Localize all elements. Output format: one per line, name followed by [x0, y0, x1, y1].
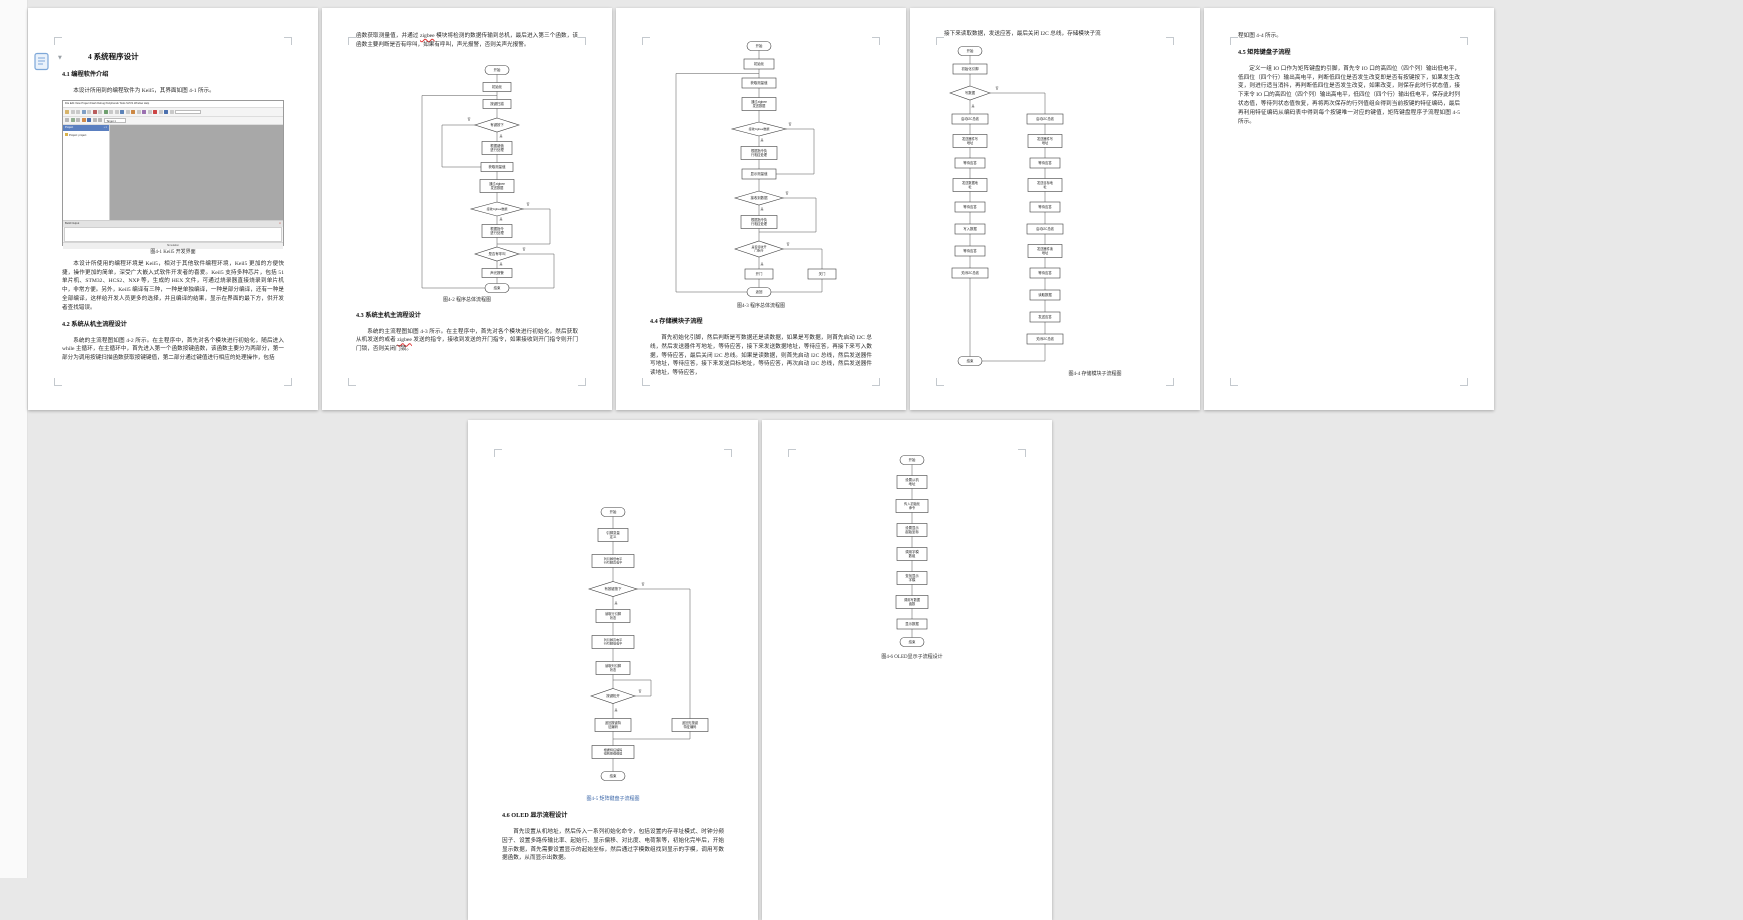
svg-text:根据指令执行相应处理: 根据指令执行相应处理	[751, 148, 768, 157]
svg-text:是: 是	[614, 600, 617, 605]
left-panel-edge	[0, 0, 28, 878]
svg-text:关门: 关门	[819, 271, 826, 276]
svg-text:是: 是	[499, 216, 502, 221]
figure-caption-4-6[interactable]: 图4-6 OLED显示子流程设计	[822, 654, 1002, 661]
svg-text:启动I2C总线: 启动I2C总线	[1036, 226, 1055, 231]
svg-text:是: 是	[971, 103, 974, 108]
svg-text:等待应答: 等待应答	[1038, 204, 1052, 209]
svg-text:返回: 返回	[756, 289, 763, 294]
svg-text:声光报警: 声光报警	[490, 269, 504, 274]
build-output-header: Build Output ×	[63, 220, 283, 227]
flowchart-fig-4-2[interactable]: 开始初始化按键扫描有键按下根据键值进行处理获取测量值通过zigbee发送数据接收…	[412, 62, 578, 294]
corner-mark	[348, 378, 356, 386]
svg-text:等待应答: 等待应答	[963, 248, 977, 253]
svg-text:开始: 开始	[909, 457, 916, 462]
svg-text:接收zigbee数据: 接收zigbee数据	[749, 126, 770, 131]
keil-project-panel: Project ▪ × Project: project	[63, 125, 110, 220]
svg-text:开始: 开始	[494, 66, 501, 71]
svg-text:关闭I2C总线: 关闭I2C总线	[961, 270, 980, 275]
body-paragraph[interactable]: 首先设置从机地址，然后传入一系列初始化命令，包括设置内存寻址模式、时钟分频因子、…	[502, 828, 724, 863]
svg-text:否: 否	[785, 191, 788, 195]
close-icon: ×	[279, 221, 281, 227]
keil-screenshot-figure[interactable]: File Edit View Project Flash Debug Perip…	[62, 100, 284, 246]
keil-menu-bar: File Edit View Project Flash Debug Perip…	[63, 101, 283, 108]
keil-build-icons	[65, 118, 102, 122]
corner-mark	[1166, 378, 1174, 386]
body-paragraph[interactable]: 接下来读取数据，发送应答，最后关闭 I2C 总线，存储模块子流	[944, 30, 1166, 39]
keil-target-select: Target 1	[104, 118, 126, 123]
svg-text:有按键按下: 有按键按下	[605, 586, 623, 591]
section-heading-4-1[interactable]: 4.1 编程软件介绍	[62, 71, 284, 79]
svg-text:否: 否	[786, 242, 789, 246]
keil-toolbar-icons	[65, 110, 174, 114]
collapse-triangle-icon[interactable]: ▼	[58, 55, 62, 61]
flowchart-fig-4-6[interactable]: 开始设置从机地址传入初始化命令设置显示起始坐标调用字模数组查找显示字模调用写数据…	[867, 452, 1018, 650]
svg-text:关闭I2C总线: 关闭I2C总线	[1036, 336, 1055, 341]
svg-text:有键按下: 有键按下	[490, 121, 504, 126]
heading-anchor-icon[interactable]	[33, 52, 51, 71]
section-heading-4-6[interactable]: 4.6 OLED 显示流程设计	[502, 812, 724, 820]
corner-mark	[1018, 449, 1026, 457]
section-heading-4-2[interactable]: 4.2 系统从机主流程设计	[62, 321, 284, 329]
svg-text:显示数据: 显示数据	[905, 621, 919, 626]
svg-text:初始化: 初始化	[492, 83, 503, 88]
chapter-title[interactable]: 4 系统程序设计	[88, 52, 284, 61]
svg-text:开门: 开门	[756, 271, 763, 276]
corner-mark	[872, 37, 880, 45]
flowchart-fig-4-3[interactable]: 开始初始化获取测量值通过zigbee发送数据接收zigbee数据根据指令执行相应…	[664, 38, 872, 300]
corner-mark	[1460, 37, 1468, 45]
keil-status-bar: Simulation	[63, 242, 283, 249]
svg-text:是: 是	[614, 707, 617, 712]
flowchart-fig-4-5[interactable]: 开始引脚变量定义列引脚低电平行引脚高电平有按键按下读取行引脚状态列引脚高电平行引…	[508, 504, 724, 782]
svg-text:否: 否	[638, 689, 641, 693]
figure-caption-4-3[interactable]: 图4-3 程序总体流程图	[650, 303, 872, 310]
body-paragraph[interactable]: 本设计所用到的编程软件为 Keil5，其界面如图 4-1 所示。	[62, 87, 284, 96]
project-icon	[65, 133, 68, 136]
page-3: 开始初始化获取测量值通过zigbee发送数据接收zigbee数据根据指令执行相应…	[616, 8, 906, 410]
project-tree-item: Project: project	[63, 131, 109, 140]
corner-mark	[642, 378, 650, 386]
keil-editor-area	[110, 125, 283, 220]
page-5: 程如图 4-4 所示。 4.5 矩阵键盘子流程 定义一组 IO 口作为矩阵键盘的…	[1204, 8, 1494, 410]
corner-mark	[642, 37, 650, 45]
svg-text:结束: 结束	[909, 639, 916, 644]
svg-text:通过zigbee发送数据: 通过zigbee发送数据	[489, 180, 505, 189]
svg-text:根据指令进行处理: 根据指令进行处理	[490, 225, 504, 234]
svg-text:写入数据: 写入数据	[963, 226, 977, 231]
svg-text:否: 否	[526, 202, 529, 206]
corner-mark	[54, 37, 62, 45]
keil-find-box	[175, 110, 201, 114]
page-1: ▼ 4 系统程序设计 4.1 编程软件介绍 本设计所用到的编程软件为 Keil5…	[28, 8, 318, 410]
corner-mark	[1230, 378, 1238, 386]
page-2: 函数获取测量值，并通过 zigbee 模块将检测的数据传输到总机，最后进入第三个…	[322, 8, 612, 410]
svg-text:开始: 开始	[967, 48, 974, 53]
svg-text:是否有呼叫: 是否有呼叫	[489, 250, 507, 255]
corner-mark	[1166, 37, 1174, 45]
svg-text:是: 是	[760, 206, 763, 211]
svg-text:等待应答: 等待应答	[963, 160, 977, 165]
svg-text:结束: 结束	[610, 773, 617, 778]
body-paragraph[interactable]: 定义一组 IO 口作为矩阵键盘的引脚，首先令 IO 口的高四位（四个列）输出低电…	[1238, 65, 1460, 127]
svg-text:是: 是	[760, 137, 763, 142]
svg-text:读取数据: 读取数据	[1038, 292, 1052, 297]
section-heading-4-5[interactable]: 4.5 矩阵键盘子流程	[1238, 49, 1460, 57]
svg-text:按键松开: 按键松开	[606, 693, 620, 698]
svg-text:否: 否	[788, 122, 791, 126]
svg-text:接收到数据: 接收到数据	[751, 195, 769, 200]
corner-mark	[788, 449, 796, 457]
svg-text:根据键值进行处理: 根据键值进行处理	[490, 142, 504, 151]
corner-mark	[494, 449, 502, 457]
corner-mark	[284, 378, 292, 386]
body-paragraph[interactable]: 系统的主流程图如图 4-2 所示。在主程序中，首先对各个模块进行初始化，随后进入…	[62, 337, 284, 363]
svg-text:否: 否	[467, 117, 470, 121]
svg-text:按键扫描: 按键扫描	[490, 100, 504, 105]
svg-text:返回无按键特征编码: 返回无按键特征编码	[682, 720, 699, 729]
svg-text:写数据: 写数据	[965, 90, 976, 95]
svg-text:否: 否	[641, 582, 644, 586]
svg-text:启动I2C总线: 启动I2C总线	[1036, 116, 1055, 121]
svg-text:通过zigbee发送数据: 通过zigbee发送数据	[751, 99, 767, 108]
figure-caption-4-1[interactable]: 图4-1 Keil5 开发界面	[62, 249, 284, 256]
build-output-panel	[64, 227, 282, 242]
svg-text:等待应答: 等待应答	[1038, 160, 1052, 165]
body-paragraph[interactable]: 程如图 4-4 所示。	[1238, 32, 1460, 41]
section-heading-4-3[interactable]: 4.3 系统主机主流程设计	[356, 312, 578, 320]
svg-text:列引脚高电平行引脚低电平: 列引脚高电平行引脚低电平	[604, 637, 623, 646]
figure-caption-4-2[interactable]: 图4-2 程序总体流程图	[356, 297, 578, 304]
svg-text:等待应答: 等待应答	[963, 204, 977, 209]
document-canvas: { "pages": { "p1": { "h1": "4 系统程序设计", "…	[0, 0, 1743, 878]
corner-mark	[872, 378, 880, 386]
svg-text:结束: 结束	[967, 358, 974, 363]
corner-mark	[578, 378, 586, 386]
svg-text:初始化: 初始化	[754, 61, 765, 66]
body-paragraph[interactable]: 函数获取测量值，并通过 zigbee 模块将检测的数据传输到总机，最后进入第三个…	[356, 32, 578, 50]
svg-text:等待应答: 等待应答	[1038, 270, 1052, 275]
corner-mark	[1230, 37, 1238, 45]
corner-mark	[54, 378, 62, 386]
svg-text:显示测量值: 显示测量值	[751, 171, 769, 176]
svg-text:是: 是	[499, 133, 502, 138]
keil-toolbar-main	[63, 108, 283, 117]
build-output-title: Build Output	[65, 221, 79, 227]
corner-mark	[348, 37, 356, 45]
svg-text:初始化引脚: 初始化引脚	[962, 66, 980, 71]
section-heading-4-4[interactable]: 4.4 存储模块子流程	[650, 318, 872, 326]
svg-text:设置显示起始坐标: 设置显示起始坐标	[905, 525, 919, 534]
page-7: 开始设置从机地址传入初始化命令设置显示起始坐标调用字模数组查找显示字模调用写数据…	[762, 420, 1052, 920]
corner-mark	[936, 378, 944, 386]
svg-text:发送应答: 发送应答	[1038, 314, 1052, 319]
svg-text:开始: 开始	[610, 509, 617, 514]
svg-text:启动I2C总线: 启动I2C总线	[961, 116, 980, 121]
page-6: 开始引脚变量定义列引脚低电平行引脚高电平有按键按下读取行引脚状态列引脚高电平行引…	[468, 420, 758, 920]
svg-text:是: 是	[499, 261, 502, 266]
svg-text:接收zigbee数据: 接收zigbee数据	[487, 205, 508, 210]
body-paragraph[interactable]: 首先初始化引脚，然后判断是写数据还是读数据，如果是写数据，则首先启动 I2C 总…	[650, 334, 872, 378]
corner-mark	[1460, 378, 1468, 386]
corner-mark	[724, 449, 732, 457]
body-paragraph[interactable]: 系统的主流程图如图 4-3 所示。在主程序中，首先对各个模块进行初始化，然后获取…	[356, 328, 578, 354]
svg-text:获取测量值: 获取测量值	[751, 80, 769, 85]
svg-text:否: 否	[995, 86, 998, 90]
svg-text:结束: 结束	[494, 284, 501, 289]
figure-caption-4-4[interactable]: 图4-4 存储模块子流程图	[1025, 371, 1165, 378]
flowchart-fig-4-4[interactable]: 开始初始化引脚写数据启动I2C总线发送器件写地址等待应答发送数据地址等待应答写入…	[925, 43, 1166, 369]
svg-text:根据指令执行相应处理: 根据指令执行相应处理	[751, 217, 768, 226]
corner-mark	[284, 37, 292, 45]
figure-caption-4-5[interactable]: 图4-5 矩阵键盘子流程图	[502, 796, 724, 803]
corner-mark	[936, 37, 944, 45]
svg-text:开始: 开始	[756, 43, 763, 48]
svg-text:否: 否	[522, 247, 525, 251]
svg-text:根据特征编码得到按键键值: 根据特征编码得到按键键值	[604, 747, 623, 756]
svg-text:获取测量值: 获取测量值	[489, 163, 507, 168]
body-paragraph[interactable]: 本设计所使用的编程环境是 Keil5，相对于其他软件编程环境，Keil5 更加的…	[62, 260, 284, 313]
page-4: 接下来读取数据，发送应答，最后关闭 I2C 总线，存储模块子流 开始初始化引脚写…	[910, 8, 1200, 410]
keil-toolbar-build: Target 1	[63, 117, 283, 125]
svg-text:列引脚低电平行引脚高电平: 列引脚低电平行引脚高电平	[604, 556, 623, 565]
document-icon	[33, 52, 51, 71]
svg-text:是: 是	[760, 261, 763, 266]
corner-mark	[578, 37, 586, 45]
